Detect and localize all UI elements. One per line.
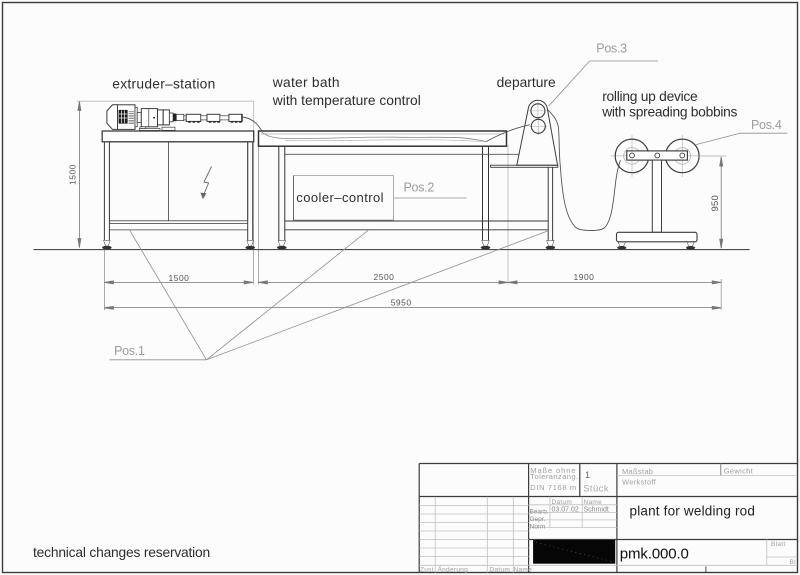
svg-text:1500: 1500 [68, 164, 78, 185]
svg-text:technical changes reservation: technical changes reservation [33, 545, 210, 560]
svg-text:Stück: Stück [583, 483, 609, 494]
svg-text:03.07.02: 03.07.02 [552, 507, 579, 514]
svg-text:Schmidt: Schmidt [584, 506, 609, 513]
svg-text:with spreading bobbins: with spreading bobbins [601, 105, 737, 120]
svg-text:plant for welding rod: plant for welding rod [630, 504, 756, 519]
svg-text:950: 950 [710, 195, 721, 211]
svg-text:Pos.2: Pos.2 [404, 181, 435, 195]
svg-text:Gepr.: Gepr. [530, 516, 546, 523]
svg-text:1900: 1900 [574, 272, 595, 282]
svg-text:Werkstoff: Werkstoff [622, 478, 657, 487]
svg-text:Toleranzang.: Toleranzang. [530, 472, 578, 481]
svg-text:1500: 1500 [169, 273, 190, 283]
svg-text:Maßstab: Maßstab [622, 467, 653, 476]
svg-text:Name: Name [584, 499, 603, 506]
svg-text:cooler–control: cooler–control [296, 190, 384, 205]
svg-text:DIN 7168 m: DIN 7168 m [530, 483, 577, 492]
svg-text:Bearb.: Bearb. [530, 509, 549, 516]
svg-text:Pos.4: Pos.4 [751, 118, 782, 132]
svg-text:departure: departure [497, 75, 556, 90]
svg-text:2500: 2500 [374, 272, 395, 282]
svg-text:Bl.: Bl. [790, 559, 799, 566]
svg-text:Datum: Datum [490, 566, 511, 573]
svg-text:Pos.3: Pos.3 [596, 41, 627, 55]
svg-text:with temperature control: with temperature control [272, 93, 421, 108]
svg-text:pmk.000.0: pmk.000.0 [620, 545, 689, 562]
svg-text:1: 1 [585, 470, 590, 480]
svg-text:rolling up device: rolling up device [602, 89, 698, 104]
svg-text:Pos.1: Pos.1 [114, 344, 145, 358]
svg-text:Norm: Norm [530, 523, 546, 530]
svg-text:Datum: Datum [552, 499, 573, 506]
svg-text:Zust.: Zust. [420, 566, 436, 573]
svg-text:extruder–station: extruder–station [112, 76, 215, 91]
svg-text:Gewicht: Gewicht [724, 467, 754, 476]
svg-text:5950: 5950 [391, 298, 412, 308]
svg-text:Name: Name [514, 566, 533, 573]
svg-text:Blatt: Blatt [771, 541, 786, 548]
svg-text:water bath: water bath [272, 75, 340, 90]
svg-text:Änderung: Änderung [438, 565, 469, 573]
